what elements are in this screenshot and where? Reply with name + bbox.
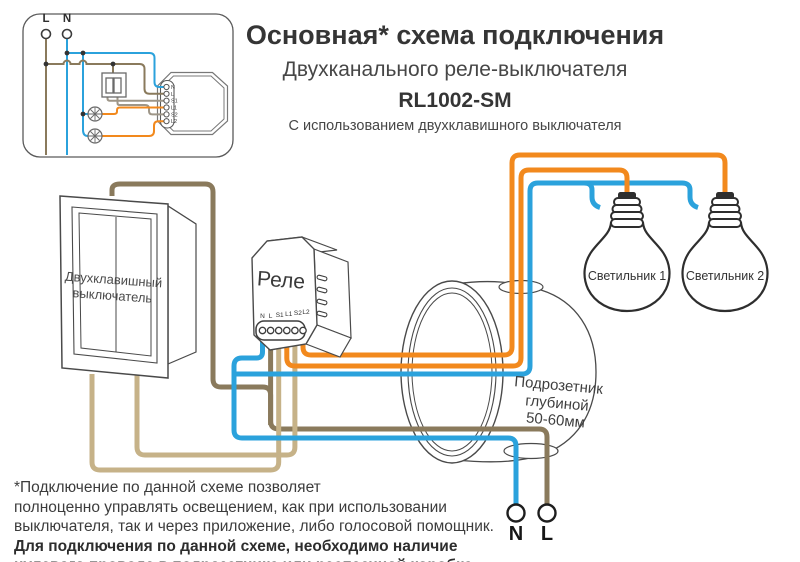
model-number: RL1002-SM (150, 89, 760, 113)
page: N L S1 L1 S2 L2 (0, 0, 800, 562)
relay-terminal-label: L (269, 313, 273, 320)
bulb-globe (683, 223, 768, 311)
footnote-line3: выключателя, так и через приложение, либ… (14, 517, 574, 537)
bulb-globe (585, 223, 670, 311)
relay-terminal-label: S1 (276, 312, 284, 319)
inset-switch-icon (102, 73, 126, 97)
footnote-line5: нулевого провода в подрозетнике или расп… (14, 556, 574, 562)
page-title: Основная* схема подключения (150, 20, 760, 51)
bulb-lamp-1 (585, 192, 670, 311)
inset-l-terminal (42, 30, 51, 39)
bulb-threads (709, 198, 741, 227)
lamp2-label: Светильник 2 (670, 269, 780, 283)
inset-lamp2-icon (88, 129, 102, 143)
bulb-cap (716, 192, 734, 199)
title-block: Основная* схема подключения Двухканально… (150, 20, 760, 134)
footnote-line2: полноценно управлять освещением, как при… (14, 498, 574, 518)
relay-terminal-label: N (260, 313, 265, 320)
bulb-cap (618, 192, 636, 199)
page-subtitle: Двухканального реле-выключателя (150, 58, 760, 82)
footnote-line4: Для подключения по данной схеме, необход… (14, 537, 574, 557)
relay-module: N L S1 L1 S2 L2 (252, 237, 351, 357)
lamp1-label: Светильник 1 (572, 269, 682, 283)
relay-terminal-label: L2 (302, 309, 310, 316)
wire-n-lamp1-branch (584, 183, 600, 208)
bulb-threads (611, 198, 643, 227)
inset-n-terminal (63, 30, 72, 39)
relay-terminal-label: L1 (285, 311, 293, 318)
bulb-lamp-2 (683, 192, 768, 311)
footnote: *Подключение по данной схеме позволяет п… (14, 478, 574, 562)
footnote-line1: *Подключение по данной схеме позволяет (14, 478, 574, 498)
inset-lamp1-icon (88, 107, 102, 121)
junction-box-label: Подрозетник глубиной 50-60мм (496, 372, 618, 435)
title-note: С использованием двухклавишного выключат… (150, 118, 760, 134)
junction-box-bottom-hole (504, 444, 558, 459)
inset-l-label: L (38, 13, 54, 25)
relay-terminal-label: S2 (294, 310, 302, 317)
inset-n-label: N (59, 13, 75, 25)
